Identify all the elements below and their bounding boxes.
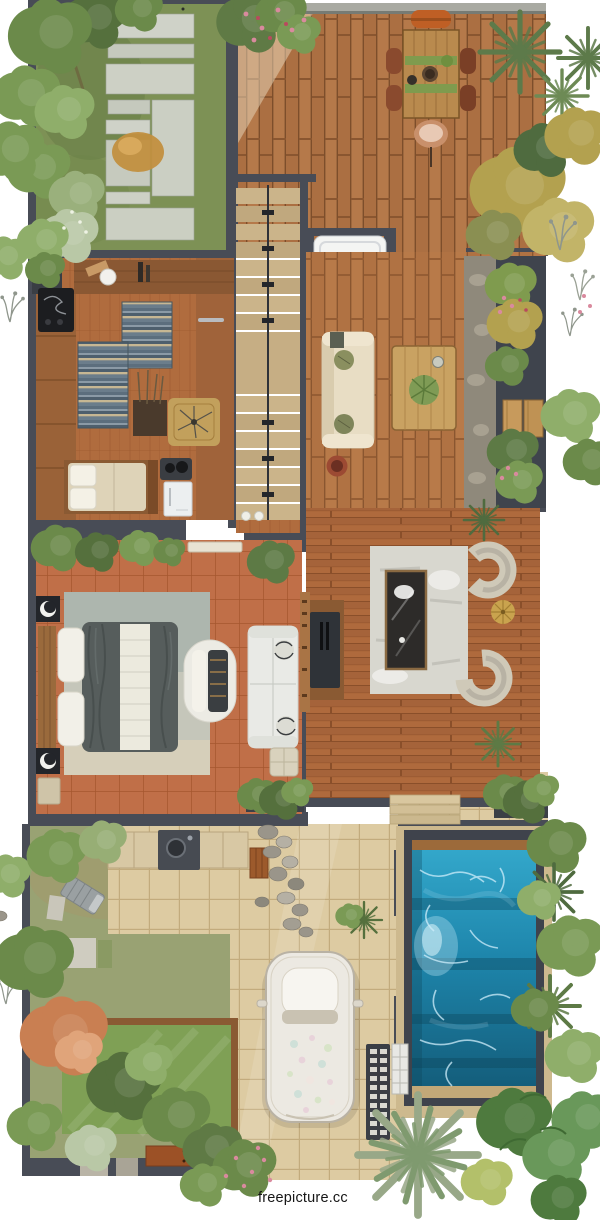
white-sofa bbox=[248, 626, 298, 748]
table-runner bbox=[405, 84, 457, 93]
dining-chair bbox=[460, 85, 476, 111]
mini-fridge bbox=[164, 482, 192, 516]
coffee-table bbox=[392, 346, 456, 430]
area-rug bbox=[122, 302, 172, 368]
storage-box bbox=[38, 778, 60, 804]
dining-chair bbox=[460, 48, 476, 74]
mossy-paver bbox=[98, 940, 112, 968]
nightstand bbox=[36, 596, 60, 622]
bed-runner bbox=[120, 624, 150, 750]
pepper-grinder bbox=[138, 262, 143, 282]
headboard bbox=[38, 626, 56, 750]
area-rug bbox=[78, 342, 128, 428]
pillow bbox=[58, 628, 84, 682]
counter-lamp bbox=[100, 269, 116, 285]
throw-blanket bbox=[330, 332, 344, 348]
door-leaf bbox=[188, 542, 242, 552]
floor-plan-svg bbox=[0, 0, 600, 1220]
table-plant bbox=[441, 55, 453, 67]
woven-mat-plant bbox=[168, 398, 220, 446]
tv-console bbox=[300, 592, 344, 712]
swimming-pool bbox=[392, 826, 552, 1118]
side-mirror bbox=[257, 1000, 267, 1007]
windshield bbox=[282, 1010, 338, 1024]
pepper-grinder bbox=[146, 265, 150, 282]
towel-rail bbox=[198, 318, 224, 322]
daybed bbox=[64, 460, 158, 514]
outdoor-sink bbox=[158, 830, 200, 870]
nightstand bbox=[36, 748, 60, 774]
master-bedroom bbox=[36, 540, 304, 814]
dining-chair bbox=[386, 85, 402, 111]
dining-chair bbox=[386, 48, 402, 74]
car-roof bbox=[282, 968, 338, 1016]
striped-pillow bbox=[276, 716, 296, 736]
round-pouf bbox=[491, 600, 515, 624]
sofa bbox=[322, 332, 374, 448]
small-bowl bbox=[407, 75, 417, 85]
round-armchair bbox=[184, 640, 236, 722]
floor-plan-image: freepicture.cc bbox=[0, 0, 600, 1220]
staircase bbox=[228, 180, 308, 533]
glass-block-window bbox=[392, 1044, 408, 1094]
kitchen-studio bbox=[32, 258, 234, 520]
striped-pillow bbox=[274, 640, 294, 660]
watermark: freepicture.cc bbox=[258, 1190, 348, 1206]
paver bbox=[46, 895, 65, 921]
patio-steps bbox=[390, 795, 460, 824]
small-bowl bbox=[433, 357, 444, 368]
side-mirror bbox=[353, 1000, 363, 1007]
pillow bbox=[58, 692, 84, 746]
glass-coffee-table bbox=[386, 571, 426, 669]
parked-car bbox=[257, 952, 363, 1128]
